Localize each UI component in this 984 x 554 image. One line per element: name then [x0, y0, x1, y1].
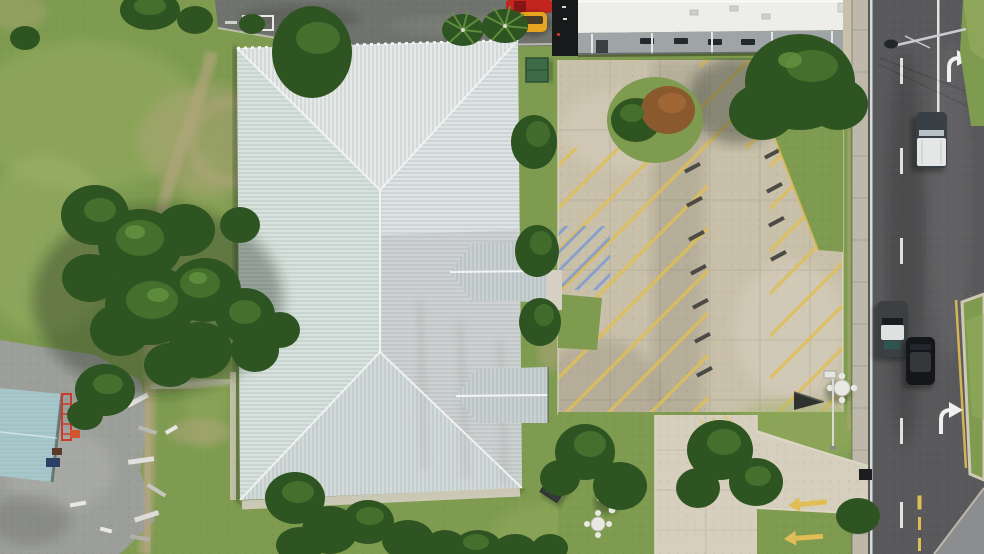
aerial-photo [0, 0, 984, 554]
dumpster [526, 58, 553, 82]
neighbor-building-roof [578, 0, 856, 33]
black-suv [902, 337, 935, 389]
dark-gap [552, 0, 578, 56]
handicap-hatching [558, 226, 610, 290]
white-pickup-truck [911, 112, 947, 172]
main-building-roof [233, 40, 562, 505]
aerial-photo-canvas [0, 0, 984, 554]
utility-box [859, 469, 872, 480]
